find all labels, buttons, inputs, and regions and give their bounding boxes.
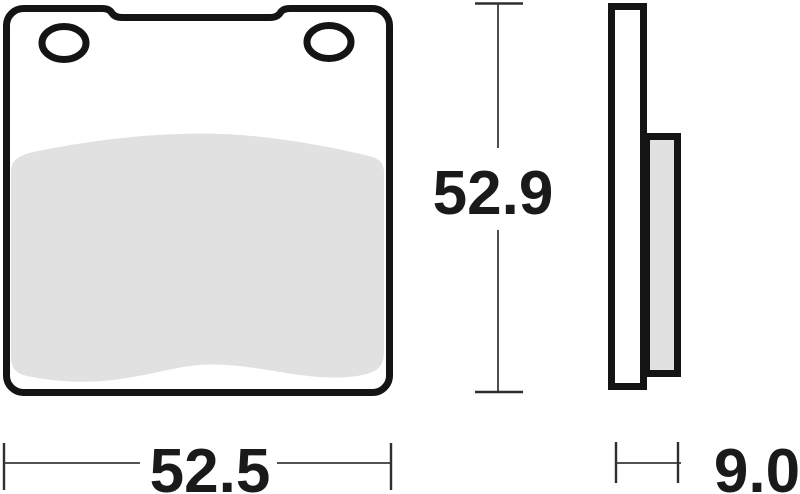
front-view <box>7 8 390 392</box>
dimension-width: 52.5 <box>4 437 391 494</box>
mounting-hole-left-icon <box>42 27 86 60</box>
width-dimension-label: 52.5 <box>150 437 271 494</box>
front-friction-material <box>11 134 384 382</box>
side-view <box>612 7 678 387</box>
side-backplate-outline <box>612 7 644 387</box>
technical-drawing-page: 52.9 52.5 9.0 <box>0 0 800 494</box>
dimension-thickness: 9.0 <box>616 437 800 494</box>
brake-pad-drawing-canvas: 52.9 52.5 9.0 <box>0 0 800 494</box>
height-dimension-label: 52.9 <box>433 159 554 228</box>
side-friction-material <box>647 137 678 374</box>
mounting-hole-right-icon <box>307 26 351 59</box>
dimension-height: 52.9 <box>433 4 554 393</box>
thickness-dimension-label: 9.0 <box>714 437 800 494</box>
